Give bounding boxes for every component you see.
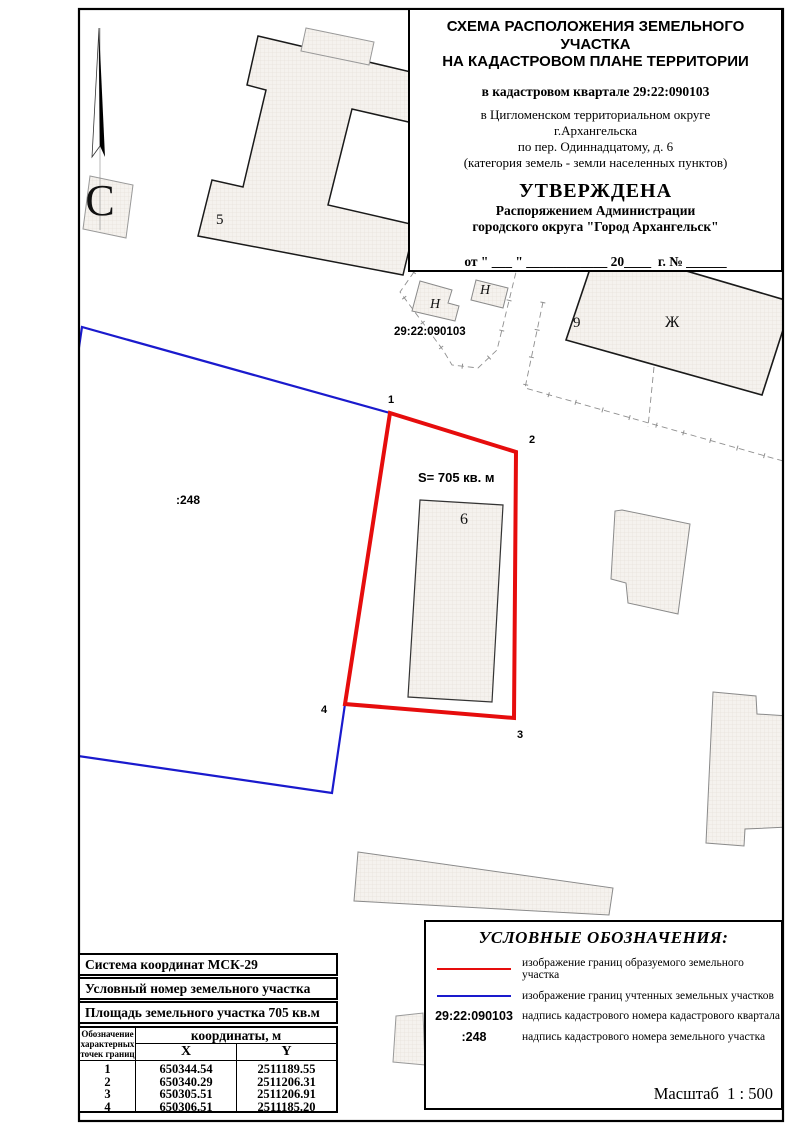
legend-item-formed-boundary: изображение границ образуемого земельног… <box>426 957 781 981</box>
x-value: 650344.54 <box>159 1063 212 1076</box>
x-value: 650306.51 <box>159 1101 212 1114</box>
registered-boundary-top <box>78 327 390 413</box>
coords-header: координаты, м <box>136 1028 336 1044</box>
table-row-number: 3 <box>104 1088 110 1101</box>
scale-label: Масштаб 1 : 500 <box>654 1084 773 1104</box>
location-line1: в Цигломенском территориальном округе <box>410 107 781 123</box>
legend-item-label: изображение границ учтенных земельных уч… <box>522 990 774 1002</box>
y-value: 2511206.91 <box>257 1088 316 1101</box>
building-bottom-small <box>393 1013 425 1065</box>
quarter-number-symbol: 29:22:090103 <box>426 1009 522 1023</box>
point4-label: 4 <box>321 704 328 716</box>
approved-by-line2: городского округа "Город Архангельск" <box>410 219 781 235</box>
y-value: 2511189.55 <box>258 1063 316 1076</box>
north-label: С <box>85 176 114 225</box>
points-column-header: Обозначение характерных точек границ <box>80 1028 136 1061</box>
conditional-number-row: Условный номер земельного участка <box>78 977 338 1000</box>
legend-item-label: надпись кадастрового номера кадастрового… <box>522 1010 780 1022</box>
building6-label: 6 <box>460 511 468 528</box>
building-5-outline <box>198 36 428 275</box>
legend-box: УСЛОВНЫЕ ОБОЗНАЧЕНИЯ: изображение границ… <box>424 920 783 1110</box>
legend-item-parcel-number: :248 надпись кадастрового номера земельн… <box>426 1030 781 1044</box>
cadastral-quarter-line: в кадастровом квартале 29:22:090103 <box>410 84 781 100</box>
approved-heading: УТВЕРЖДЕНА <box>410 180 781 203</box>
land-category-line: (категория земель - земли населенных пун… <box>410 155 781 171</box>
quarter-number-label: 29:22:090103 <box>394 326 466 338</box>
parcel-number-symbol: :248 <box>426 1030 522 1044</box>
coordinate-system-row: Система координат МСК-29 <box>78 953 338 976</box>
scheme-title-line2: НА КАДАСТРОВОМ ПЛАНЕ ТЕРРИТОРИИ <box>410 53 781 71</box>
location-line2: г.Архангельска <box>410 123 781 139</box>
legend-item-quarter-number: 29:22:090103 надпись кадастрового номера… <box>426 1009 781 1023</box>
building-bottom-center <box>354 852 613 915</box>
area-label: S= 705 кв. м <box>418 470 495 485</box>
red-line-swatch <box>437 968 511 970</box>
point1-label: 1 <box>388 394 394 406</box>
parcel-area-row: Площадь земельного участка 705 кв.м <box>78 1001 338 1024</box>
building-6-outline <box>408 500 503 702</box>
parcel248-label: :248 <box>176 493 200 507</box>
table-row-number: 1 <box>104 1063 110 1076</box>
x-value: 650305.51 <box>159 1088 212 1101</box>
building-mid-right <box>611 510 690 614</box>
point3-label: 3 <box>517 729 523 741</box>
approved-by-line1: Распоряжением Администрации <box>410 203 781 219</box>
legend-item-label: изображение границ образуемого земельног… <box>522 957 781 981</box>
y-value: 2511185.20 <box>258 1101 316 1114</box>
address-line: по пер. Одиннадцатому, д. 6 <box>410 139 781 155</box>
h-left-label: Н <box>429 297 441 312</box>
point-number-cells: 1 2 3 4 <box>80 1061 136 1111</box>
point2-label: 2 <box>529 434 535 446</box>
legend-title: УСЛОВНЫЕ ОБОЗНАЧЕНИЯ: <box>426 928 781 948</box>
h-right-label: Н <box>479 283 491 298</box>
registered-boundary-bottom <box>78 704 345 793</box>
building-bottom-right <box>706 692 790 846</box>
x-value-cells: 650344.54 650340.29 650305.51 650306.51 <box>136 1061 237 1111</box>
approval-date-line: от " ___ " ____________ 20____ г. № ____… <box>410 254 781 270</box>
table-row-number: 4 <box>104 1101 110 1114</box>
cadastral-scheme-page: { "title_block": { "heading1": "СХЕМА РА… <box>0 0 800 1131</box>
blue-line-swatch <box>437 995 511 998</box>
coordinates-table: Обозначение характерных точек границ коо… <box>78 1026 338 1113</box>
building-zh-label: Ж <box>665 314 680 331</box>
legend-item-registered-boundary: изображение границ учтенных земельных уч… <box>426 990 781 1002</box>
dashed-boundary-connector <box>648 367 654 427</box>
scheme-title-line1: СХЕМА РАСПОЛОЖЕНИЯ ЗЕМЕЛЬНОГО УЧАСТКА <box>410 18 781 53</box>
x-column-header: Х <box>136 1044 237 1061</box>
parcel5-label: 5 <box>216 212 224 228</box>
title-block: СХЕМА РАСПОЛОЖЕНИЯ ЗЕМЕЛЬНОГО УЧАСТКА НА… <box>408 8 783 272</box>
parcel9-label: 9 <box>573 315 581 331</box>
legend-item-label: надпись кадастрового номера земельного у… <box>522 1031 765 1043</box>
y-column-header: Y <box>237 1044 336 1061</box>
y-value-cells: 2511189.55 2511206.31 2511206.91 2511185… <box>237 1061 336 1111</box>
